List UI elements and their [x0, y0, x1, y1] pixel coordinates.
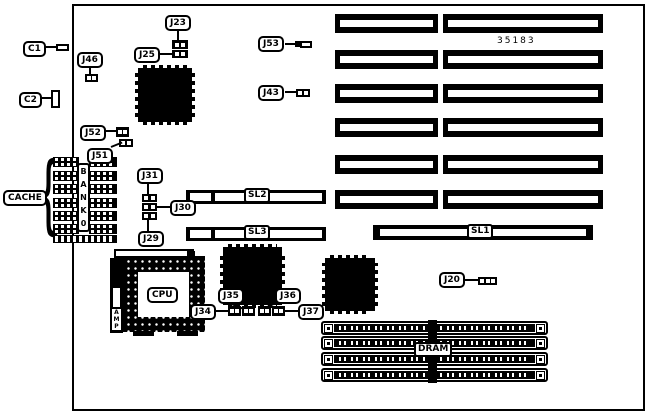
expansion-slot-segment — [443, 155, 603, 174]
j37-connector — [272, 306, 285, 316]
cache-chip — [53, 184, 79, 194]
callout-j30: J30 — [170, 200, 196, 216]
simm-latch-icon — [324, 339, 333, 348]
callout-j20: J20 — [439, 272, 465, 288]
dram-label: DRAM — [414, 342, 452, 357]
connector-notch — [187, 251, 195, 258]
cpu-label: CPU — [147, 287, 178, 303]
expansion-slot-segment — [335, 118, 438, 137]
pointer-line — [215, 310, 228, 312]
pointer-line — [465, 279, 478, 281]
pointer-line — [160, 53, 172, 55]
simm-socket — [321, 368, 548, 382]
expansion-slot-segment — [335, 50, 438, 69]
amp-letter: A — [112, 309, 121, 316]
j20-connector — [478, 277, 497, 285]
c1-connector — [56, 44, 69, 51]
bank-letter: A — [79, 178, 88, 191]
j31-connector — [142, 194, 157, 202]
callout-j46: J46 — [77, 52, 103, 68]
cache-chip — [53, 198, 79, 208]
ic-chip-icon — [325, 258, 375, 311]
callout-j31: J31 — [137, 168, 163, 184]
motherboard-diagram: 35183 SL1 SL2 SL3 A M P CPU — [0, 0, 648, 415]
slot-sl2-label: SL2 — [244, 188, 270, 203]
j43-connector — [296, 89, 310, 97]
expansion-slot-segment — [443, 50, 603, 69]
callout-c1: C1 — [23, 41, 46, 57]
amp-letter: M — [112, 316, 121, 323]
expansion-slot-segment — [443, 14, 603, 33]
pointer-line — [285, 310, 298, 312]
callout-j43: J43 — [258, 85, 284, 101]
callout-j53: J53 — [258, 36, 284, 52]
expansion-slot-segment — [335, 84, 438, 103]
j29-connector — [142, 212, 157, 220]
j25-connector — [172, 50, 188, 58]
pointer-line — [285, 43, 295, 45]
expansion-slot-segment — [443, 84, 603, 103]
callout-j29: J29 — [138, 231, 164, 247]
simm-latch-icon — [324, 355, 333, 364]
callout-j35: J35 — [218, 288, 244, 304]
bank-letter: 0 — [79, 217, 88, 230]
cache-chip — [89, 184, 117, 194]
slot-sl3-label: SL3 — [244, 225, 270, 240]
simm-latch-icon — [536, 371, 545, 380]
c2-connector — [51, 90, 60, 108]
j53-connector — [300, 41, 312, 48]
cache-chip — [89, 171, 117, 181]
callout-j37: J37 — [298, 304, 324, 320]
pointer-line — [106, 130, 116, 132]
cache-chip — [89, 211, 117, 221]
callout-j25: J25 — [134, 47, 160, 63]
callout-j51: J51 — [87, 148, 113, 164]
j23-connector — [172, 40, 188, 49]
bank-letter: N — [79, 191, 88, 204]
socket-foot — [177, 331, 198, 336]
expansion-slot-segment — [335, 190, 438, 209]
simm-latch-icon — [536, 324, 545, 333]
j46-connector — [85, 74, 98, 82]
expansion-slot-segment — [335, 14, 438, 33]
cpu-top-connector — [114, 249, 194, 258]
pointer-line — [41, 97, 51, 99]
bank0-label: B A N K 0 — [77, 163, 90, 232]
simm-latch-icon — [536, 339, 545, 348]
pointer-line — [157, 206, 170, 208]
callout-j36: J36 — [275, 288, 301, 304]
j30-connector — [142, 203, 157, 211]
pointer-line — [147, 220, 149, 231]
callout-j23: J23 — [165, 15, 191, 31]
expansion-slot-segment — [443, 190, 603, 209]
amp-label: A M P — [111, 308, 122, 331]
cache-chip — [53, 211, 79, 221]
expansion-slot-segment — [335, 155, 438, 174]
cache-chip — [53, 171, 79, 181]
pointer-line — [45, 46, 56, 48]
simm-latch-icon — [324, 324, 333, 333]
bank-letter: B — [79, 165, 88, 178]
pointer-line — [285, 91, 296, 93]
slot-sl1-label: SL1 — [467, 224, 493, 239]
cache-chip — [89, 224, 117, 234]
amp-letter: P — [112, 323, 121, 330]
callout-c2: C2 — [19, 92, 42, 108]
cache-chip — [89, 198, 117, 208]
socket-foot — [133, 331, 154, 336]
ic-chip-icon — [138, 68, 192, 122]
j52-connector — [116, 127, 129, 137]
cache-chip — [53, 224, 79, 234]
callout-j34: J34 — [190, 304, 216, 320]
callout-j52: J52 — [80, 125, 106, 141]
amp-socket-slot — [113, 288, 120, 307]
simm-socket — [321, 321, 548, 335]
part-number: 35183 — [497, 36, 536, 46]
bank-letter: K — [79, 204, 88, 217]
cache-chip — [53, 157, 79, 167]
cache-chip — [53, 235, 117, 243]
simm-latch-icon — [536, 355, 545, 364]
simm-latch-icon — [324, 371, 333, 380]
expansion-slot-segment — [443, 118, 603, 137]
callout-cache: CACHE — [3, 190, 47, 206]
